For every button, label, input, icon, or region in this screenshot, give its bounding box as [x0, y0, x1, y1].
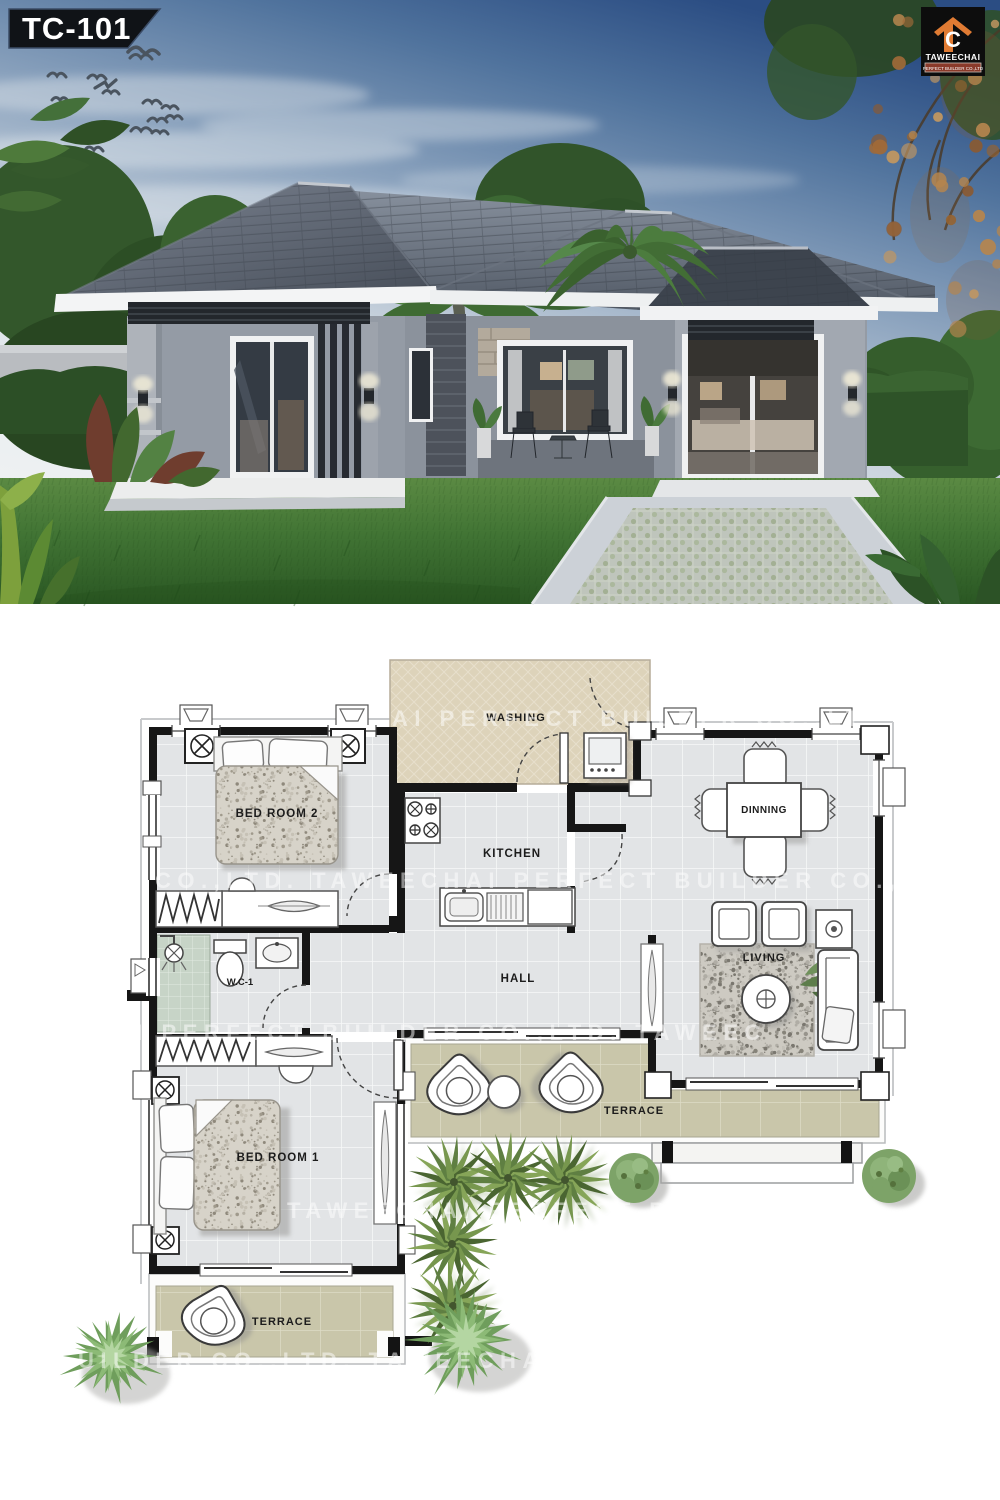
svg-text:BED ROOM 2: BED ROOM 2	[236, 808, 319, 820]
svg-text:ECHAI PERFECT BUILDER CO.,L: ECHAI PERFECT BUILDER CO.,LTD. TAWEEC	[48, 1020, 767, 1045]
svg-text:TC-101: TC-101	[22, 11, 131, 46]
svg-text:CO.,LTD. TAWEECHAI PERFECT: CO.,LTD. TAWEECHAI PERFECT BUILDER CO.,L…	[155, 868, 962, 893]
svg-text:TERRACE: TERRACE	[252, 1316, 312, 1328]
svg-text:DINNING: DINNING	[741, 805, 787, 816]
svg-text:TAWEECHAI PERFECT BUILDER: TAWEECHAI PERFECT BUILDER	[287, 1198, 793, 1223]
svg-text:AI PERFECT BUILDER CO.,LT: AI PERFECT BUILDER CO.,LT	[392, 706, 866, 731]
svg-text:C: C	[945, 27, 961, 52]
svg-text:BED ROOM 1: BED ROOM 1	[237, 1152, 320, 1164]
svg-text:TERRACE: TERRACE	[604, 1105, 664, 1117]
svg-text:HALL: HALL	[501, 973, 536, 985]
svg-text:TAWEECHAI: TAWEECHAI	[926, 52, 981, 62]
svg-text:KITCHEN: KITCHEN	[483, 848, 541, 860]
svg-text:UILDER CO.,LTD. TAWEECHAI P: UILDER CO.,LTD. TAWEECHAI PERFECT BUILDE…	[78, 1348, 874, 1373]
svg-text:PERFECT BUILDER CO.,LTD: PERFECT BUILDER CO.,LTD	[923, 66, 984, 71]
svg-text:LIVING: LIVING	[743, 952, 786, 964]
svg-text:W.C-1: W.C-1	[227, 977, 254, 988]
